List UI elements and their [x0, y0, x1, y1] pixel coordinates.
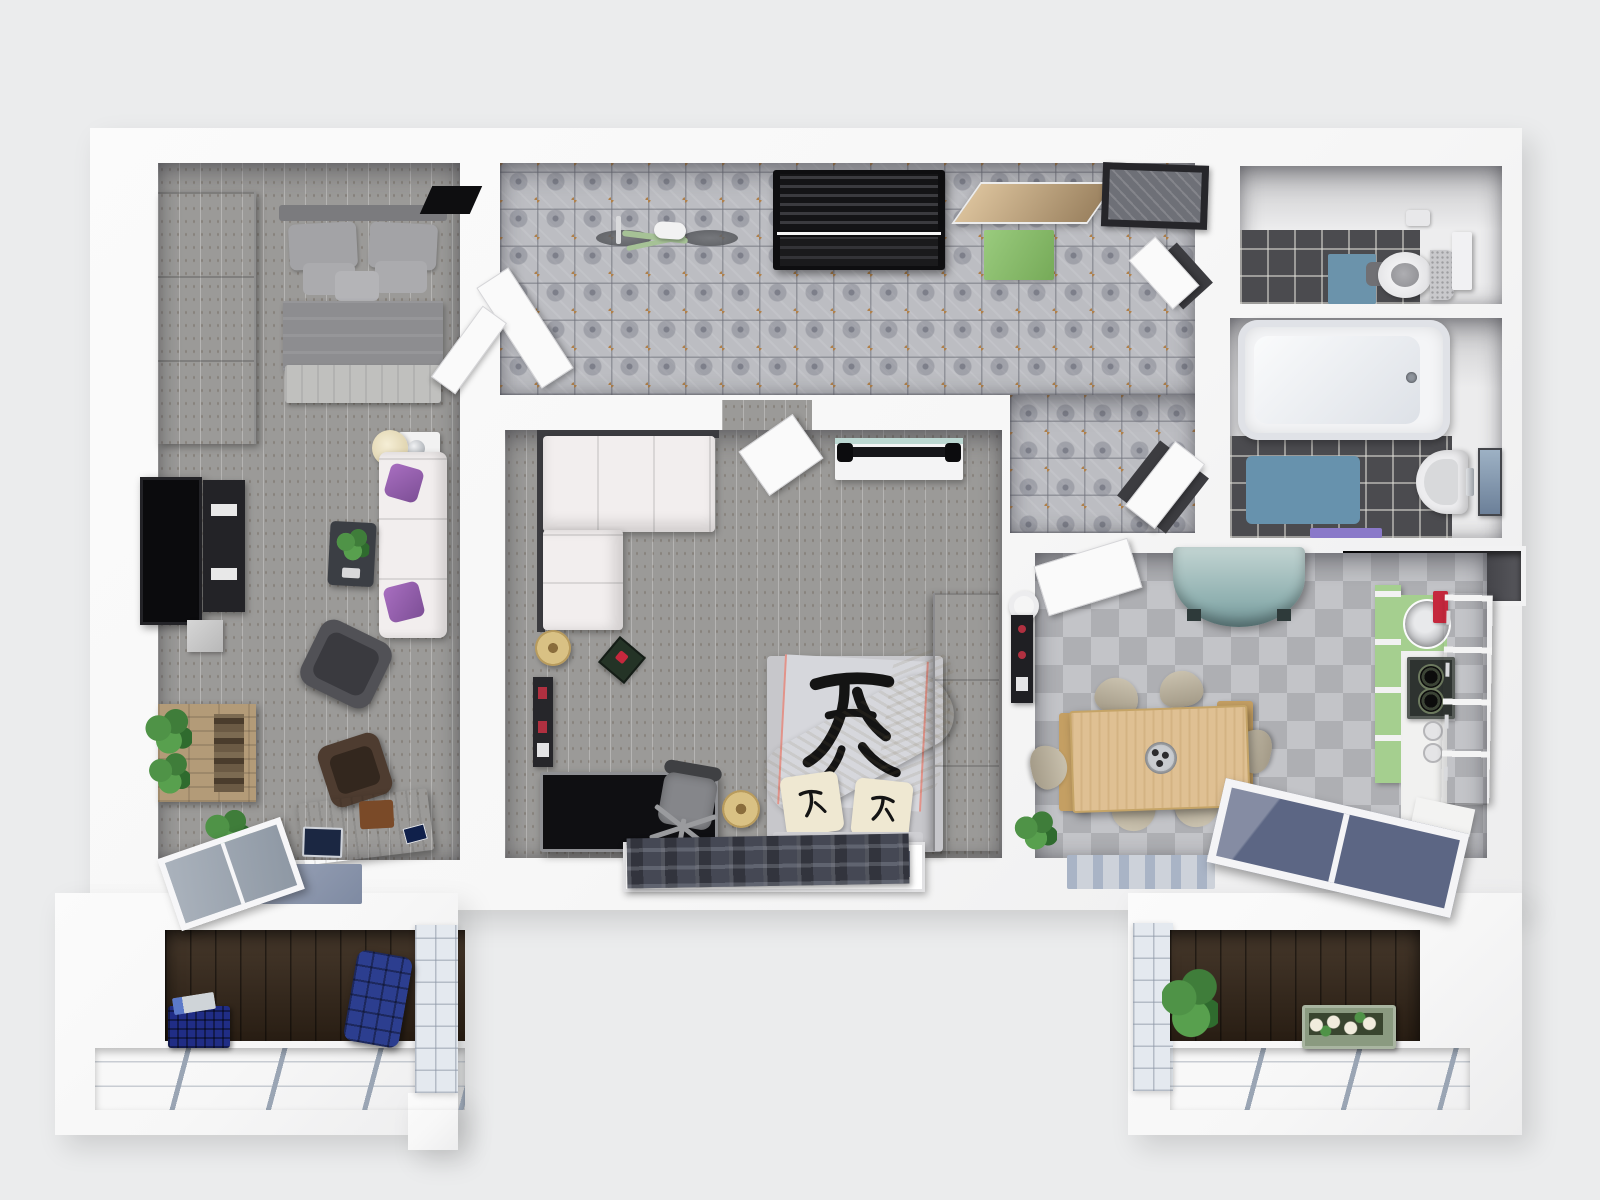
corner-cabinet-teal [1173, 547, 1305, 627]
framed-doormat [1101, 162, 1209, 230]
room-hallway [500, 163, 1195, 395]
burner [1418, 664, 1444, 690]
cabinet-foot [1277, 609, 1291, 621]
toilet-paper-holder [1406, 210, 1430, 226]
pillow [335, 271, 379, 301]
wine-bottle [1018, 625, 1026, 633]
corner-sofa [543, 436, 715, 532]
wall-switch [187, 620, 223, 652]
coat-rack-bench [773, 170, 945, 270]
bike-saddle [653, 221, 686, 240]
wall-shelf-living [533, 677, 553, 767]
pillow-kanji [792, 782, 831, 824]
balcony-left-side-glass [415, 925, 458, 1093]
balcony-plant [1162, 965, 1218, 1043]
striped-rug-kitchen [1067, 855, 1215, 889]
control-knob [1423, 721, 1443, 741]
shelf-slot [211, 504, 237, 516]
balcony-left-railing [95, 1048, 465, 1110]
entry-door-open [951, 182, 1116, 224]
control-knob [1423, 743, 1443, 763]
window-mullion [221, 842, 246, 904]
desk-phone [403, 823, 428, 844]
wall-tv [140, 477, 202, 625]
toilet-basin [1391, 263, 1419, 287]
potted-plant-on-table [335, 527, 371, 563]
bathtub [1238, 320, 1450, 440]
planter-flowers [1307, 1010, 1385, 1040]
burner [1418, 688, 1444, 714]
green-doormat [984, 230, 1054, 280]
shelf-white-book [537, 743, 549, 757]
shelf-red-item [538, 687, 547, 699]
cabinet-handle [1445, 663, 1449, 677]
bottle [1162, 752, 1169, 759]
table-trivet [1144, 741, 1177, 774]
balcony-right-railing [1170, 1048, 1470, 1110]
floor-cushion-2 [722, 790, 760, 828]
room-wc [1240, 166, 1502, 304]
bench-slats-bottom [780, 237, 938, 266]
cistern [1452, 232, 1472, 290]
flower-planter-box [1302, 1005, 1396, 1049]
dumbbell-cap [945, 443, 961, 462]
wine-shelf-slot [1016, 677, 1028, 691]
sofa-bedroom [379, 452, 447, 638]
toilet-lid-open [1430, 250, 1454, 300]
shelf-plant [144, 708, 192, 756]
cabinet-handle [1444, 715, 1448, 729]
room-living [505, 430, 1002, 858]
bottle [1152, 749, 1159, 756]
tray-item [615, 650, 629, 664]
plaid-rug [627, 834, 910, 889]
laptop [302, 827, 343, 858]
corner-sofa-chaise [543, 530, 623, 630]
wine-bottle [1018, 651, 1026, 659]
shelf-slot [211, 568, 237, 580]
sideboard-glass-shelf [835, 438, 963, 444]
duvet [283, 301, 443, 371]
wine-rack [1011, 615, 1033, 703]
double-bed [283, 205, 443, 403]
shelf-red-item [538, 721, 547, 733]
floor-cushion [535, 630, 571, 666]
tub-drain [1406, 372, 1417, 383]
dining-chair [1156, 667, 1206, 710]
serving-tray [598, 636, 646, 684]
green-cabinet-left-column [1375, 585, 1401, 783]
pillow-kanji [863, 787, 901, 828]
coffee-table [327, 521, 376, 587]
bike-handlebar [616, 216, 621, 244]
chair-seat [328, 744, 382, 796]
bench-slats-top [780, 174, 938, 230]
cabinet-handle [1446, 611, 1450, 625]
wardrobe [158, 192, 256, 444]
bench-rail [777, 232, 941, 235]
tub-basin [1254, 336, 1420, 424]
kitchen-plant [1013, 811, 1057, 851]
desk-board [359, 800, 394, 830]
room-bathroom [1230, 318, 1502, 538]
shelf-plant [148, 752, 190, 796]
dumbbell-cap [837, 443, 853, 462]
basin-faucet [1466, 468, 1474, 496]
floor-plan-scene [0, 0, 1600, 1200]
bicycle [596, 210, 738, 258]
basin-bowl [1424, 459, 1458, 505]
shelf-books [214, 714, 244, 792]
dumbbell-bar [847, 447, 951, 457]
tall-cabinet [933, 593, 999, 851]
bike-wheel [682, 230, 738, 246]
bath-mat-blue [1246, 456, 1360, 524]
bathroom-mirror [1478, 448, 1502, 516]
balcony-right [1128, 893, 1522, 1135]
media-shelf [203, 480, 245, 612]
sideboard [835, 438, 963, 480]
purple-cushion [382, 580, 426, 624]
bottle [1156, 760, 1163, 767]
room-bedroom [158, 163, 460, 860]
table-item [342, 568, 360, 579]
toilet-bowl [1378, 252, 1432, 298]
kanji-pillow [779, 770, 845, 837]
cabinet-foot [1187, 609, 1201, 621]
purple-cushion [383, 462, 425, 504]
kanji-bed [767, 656, 943, 852]
desk-bedroom [296, 788, 435, 866]
pallet-shelf [158, 704, 256, 802]
folded-blanket [285, 365, 441, 403]
green-cabinet-right-column [1441, 593, 1493, 804]
purple-towel [1310, 528, 1382, 538]
balcony-left [55, 893, 458, 1135]
pillow [375, 261, 427, 293]
cabinet-handle [1444, 767, 1448, 781]
armchair-seat [310, 629, 382, 698]
